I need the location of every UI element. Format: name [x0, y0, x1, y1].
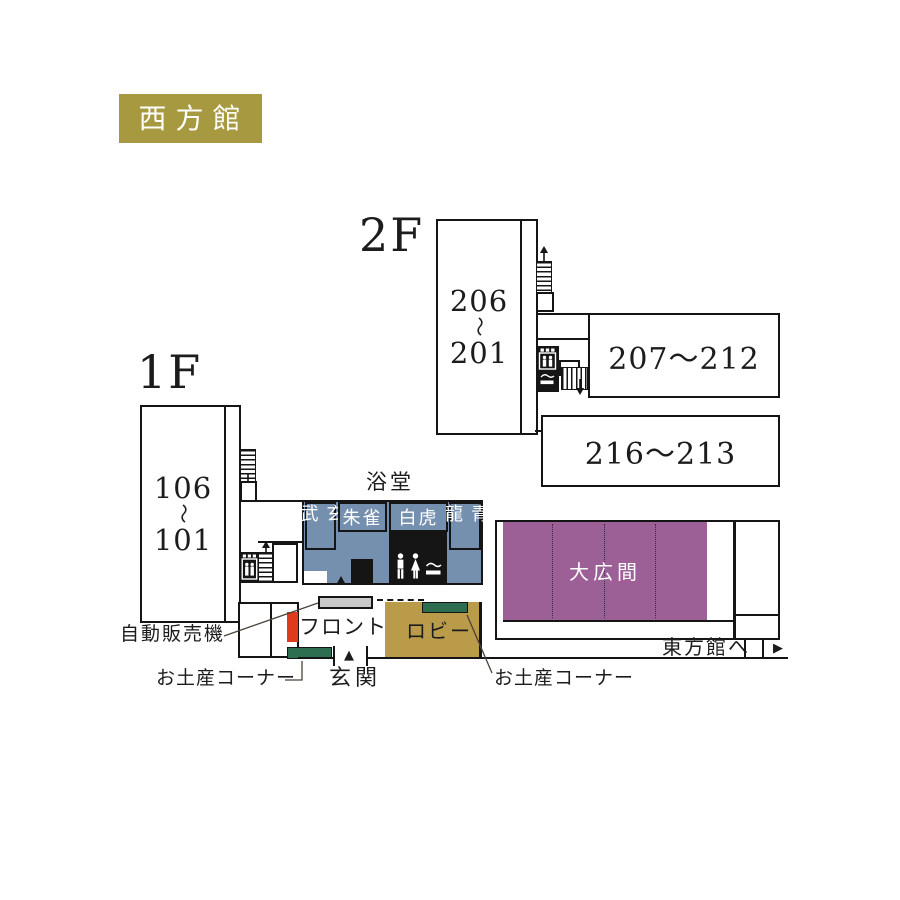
pointer-lines — [0, 0, 900, 900]
pointer-line-vending — [224, 603, 318, 636]
pointer-line-souvenir-left — [285, 661, 302, 680]
pointer-line-souvenir-right — [467, 615, 492, 673]
floor-plan-canvas: 西方館 2F 206 〜 201 — [0, 0, 900, 900]
